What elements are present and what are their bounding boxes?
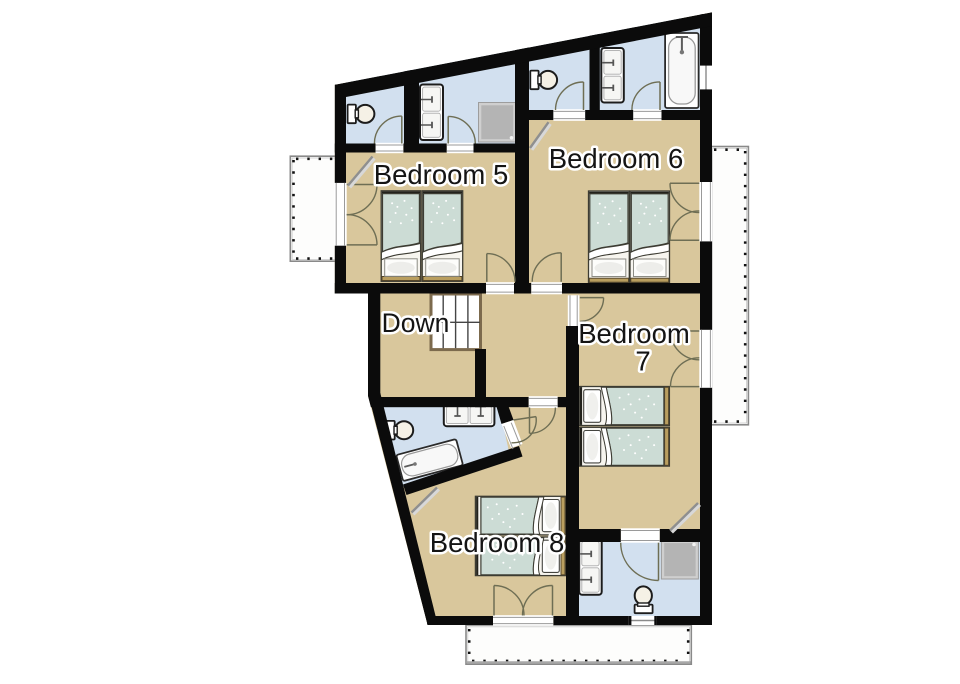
svg-text:Down: Down — [382, 308, 450, 338]
svg-text:Bedroom 5: Bedroom 5 — [374, 159, 509, 190]
svg-text:7: 7 — [635, 346, 650, 377]
svg-text:Bedroom 8: Bedroom 8 — [430, 527, 565, 558]
svg-text:Bedroom: Bedroom — [578, 318, 690, 349]
svg-text:Bedroom 6: Bedroom 6 — [549, 143, 684, 174]
